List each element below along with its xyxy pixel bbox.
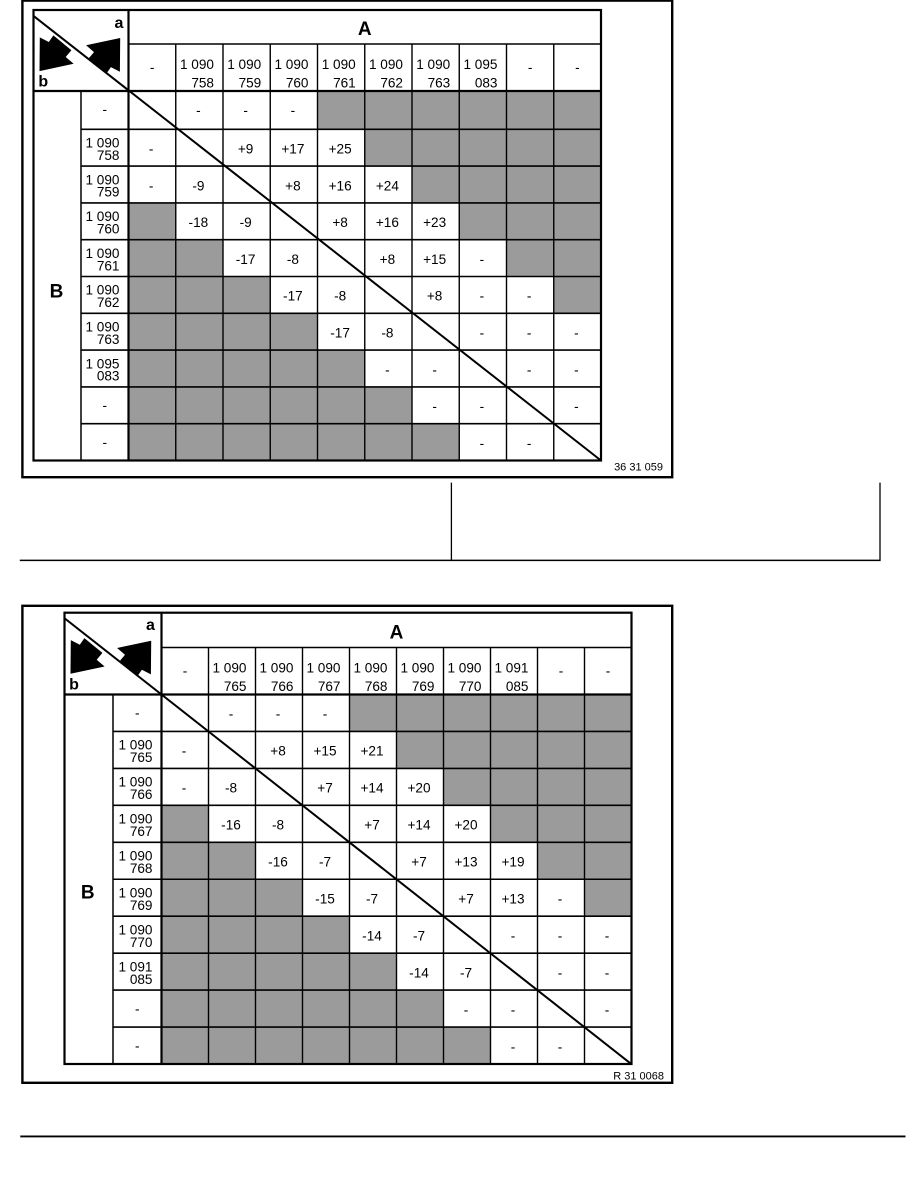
- svg-text:-17: -17: [283, 289, 303, 304]
- svg-text:+15: +15: [313, 744, 336, 759]
- svg-text:+16: +16: [376, 215, 399, 230]
- svg-text:768: 768: [365, 679, 388, 694]
- svg-text:083: 083: [97, 369, 120, 384]
- svg-text:-: -: [102, 435, 107, 450]
- svg-text:-: -: [291, 103, 296, 118]
- svg-text:-8: -8: [272, 818, 284, 833]
- svg-text:-: -: [149, 178, 154, 193]
- svg-text:-: -: [276, 707, 281, 722]
- svg-text:-17: -17: [236, 252, 256, 267]
- svg-text:-: -: [243, 103, 248, 118]
- svg-text:-14: -14: [409, 965, 429, 980]
- svg-text:085: 085: [130, 972, 153, 987]
- svg-text:-: -: [511, 928, 516, 943]
- svg-text:761: 761: [97, 258, 120, 273]
- svg-text:-16: -16: [221, 818, 241, 833]
- svg-text:-7: -7: [366, 891, 378, 906]
- svg-text:766: 766: [130, 787, 153, 802]
- svg-text:770: 770: [130, 935, 153, 950]
- svg-text:-: -: [323, 707, 328, 722]
- svg-text:+13: +13: [454, 855, 477, 870]
- svg-text:760: 760: [97, 222, 120, 237]
- svg-text:-8: -8: [381, 326, 393, 341]
- svg-text:758: 758: [191, 75, 214, 90]
- svg-text:+14: +14: [360, 781, 383, 796]
- svg-text:763: 763: [97, 332, 120, 347]
- svg-text:-14: -14: [362, 928, 382, 943]
- svg-text:-: -: [511, 1002, 516, 1017]
- svg-text:-: -: [102, 398, 107, 413]
- svg-text:+7: +7: [411, 855, 427, 870]
- svg-text:768: 768: [130, 861, 153, 876]
- svg-text:1 090: 1 090: [400, 661, 434, 676]
- svg-text:-: -: [575, 60, 580, 75]
- svg-text:-: -: [558, 891, 563, 906]
- svg-text:-: -: [558, 928, 563, 943]
- svg-text:765: 765: [130, 750, 153, 765]
- svg-text:767: 767: [318, 679, 341, 694]
- svg-text:-18: -18: [189, 215, 209, 230]
- svg-text:-: -: [558, 965, 563, 980]
- svg-text:+20: +20: [454, 818, 477, 833]
- svg-text:-: -: [135, 1038, 140, 1053]
- svg-text:760: 760: [286, 75, 309, 90]
- svg-text:-: -: [605, 928, 610, 943]
- svg-text:36 31 059: 36 31 059: [614, 462, 663, 474]
- svg-text:a: a: [146, 617, 155, 634]
- svg-text:-: -: [135, 706, 140, 721]
- svg-text:+7: +7: [317, 781, 333, 796]
- svg-text:+19: +19: [501, 855, 524, 870]
- svg-text:+8: +8: [270, 744, 286, 759]
- svg-text:-: -: [527, 326, 532, 341]
- svg-text:762: 762: [380, 75, 403, 90]
- svg-text:+14: +14: [407, 818, 430, 833]
- svg-text:-: -: [102, 102, 107, 117]
- svg-text:+23: +23: [423, 215, 446, 230]
- svg-text:-: -: [385, 362, 390, 377]
- svg-text:-8: -8: [334, 289, 346, 304]
- svg-text:1 090: 1 090: [447, 661, 481, 676]
- svg-text:766: 766: [271, 679, 294, 694]
- svg-text:+8: +8: [285, 178, 301, 193]
- svg-text:770: 770: [459, 679, 482, 694]
- svg-text:-: -: [527, 436, 532, 451]
- svg-text:-: -: [574, 399, 579, 414]
- svg-text:B: B: [50, 282, 64, 303]
- svg-text:1 090: 1 090: [227, 57, 261, 72]
- svg-text:1 090: 1 090: [322, 57, 356, 72]
- svg-text:-: -: [432, 362, 437, 377]
- svg-text:+9: +9: [238, 142, 254, 157]
- svg-text:1 090: 1 090: [259, 661, 293, 676]
- svg-text:+7: +7: [458, 891, 474, 906]
- svg-text:-15: -15: [315, 891, 335, 906]
- svg-text:-7: -7: [319, 855, 331, 870]
- svg-text:767: 767: [130, 824, 153, 839]
- svg-text:759: 759: [239, 75, 262, 90]
- svg-text:+17: +17: [281, 142, 304, 157]
- svg-text:+8: +8: [380, 252, 396, 267]
- svg-text:-: -: [196, 103, 201, 118]
- svg-text:-: -: [150, 60, 155, 75]
- svg-text:B: B: [81, 883, 95, 904]
- svg-text:-: -: [606, 663, 611, 678]
- svg-text:-: -: [559, 663, 564, 678]
- svg-text:+15: +15: [423, 252, 446, 267]
- svg-text:-9: -9: [240, 215, 252, 230]
- svg-text:761: 761: [333, 75, 356, 90]
- svg-text:769: 769: [412, 679, 435, 694]
- svg-text:1 090: 1 090: [416, 57, 450, 72]
- svg-text:-16: -16: [268, 855, 288, 870]
- svg-text:1 095: 1 095: [463, 57, 497, 72]
- svg-text:-: -: [527, 362, 532, 377]
- svg-text:a: a: [115, 15, 124, 32]
- svg-text:083: 083: [475, 75, 498, 90]
- svg-text:-: -: [528, 60, 533, 75]
- svg-text:R 31 0068: R 31 0068: [613, 1071, 664, 1083]
- svg-text:+25: +25: [329, 142, 352, 157]
- svg-text:-: -: [527, 289, 532, 304]
- svg-text:-: -: [511, 1039, 516, 1054]
- svg-text:1 090: 1 090: [306, 661, 340, 676]
- svg-text:-: -: [605, 1002, 610, 1017]
- svg-text:1 090: 1 090: [212, 661, 246, 676]
- svg-text:+21: +21: [360, 744, 383, 759]
- svg-text:-: -: [182, 744, 187, 759]
- svg-text:759: 759: [97, 185, 120, 200]
- svg-text:-8: -8: [225, 781, 237, 796]
- svg-text:-: -: [480, 289, 485, 304]
- svg-text:+24: +24: [376, 178, 399, 193]
- svg-text:-17: -17: [330, 326, 350, 341]
- svg-text:1 090: 1 090: [353, 661, 387, 676]
- svg-text:+16: +16: [329, 178, 352, 193]
- svg-text:b: b: [69, 677, 79, 694]
- svg-text:-: -: [558, 1039, 563, 1054]
- svg-text:-: -: [432, 399, 437, 414]
- svg-text:1 090: 1 090: [180, 57, 214, 72]
- svg-text:+8: +8: [427, 289, 443, 304]
- svg-text:-: -: [182, 781, 187, 796]
- svg-text:b: b: [38, 74, 48, 91]
- svg-text:-: -: [149, 142, 154, 157]
- svg-text:+8: +8: [332, 215, 348, 230]
- svg-text:758: 758: [97, 148, 120, 163]
- svg-text:-: -: [605, 965, 610, 980]
- svg-text:769: 769: [130, 898, 153, 913]
- svg-text:1 090: 1 090: [274, 57, 308, 72]
- svg-text:+20: +20: [407, 781, 430, 796]
- svg-text:-: -: [574, 362, 579, 377]
- svg-text:+7: +7: [364, 818, 380, 833]
- svg-text:085: 085: [506, 679, 529, 694]
- svg-text:-: -: [480, 252, 485, 267]
- svg-text:763: 763: [428, 75, 451, 90]
- svg-text:762: 762: [97, 295, 120, 310]
- svg-text:-: -: [135, 1001, 140, 1016]
- svg-text:-8: -8: [287, 252, 299, 267]
- svg-text:1 091: 1 091: [494, 661, 528, 676]
- svg-text:A: A: [358, 19, 372, 40]
- svg-text:-7: -7: [413, 928, 425, 943]
- svg-text:1 090: 1 090: [369, 57, 403, 72]
- svg-text:765: 765: [224, 679, 247, 694]
- svg-text:-: -: [480, 326, 485, 341]
- svg-text:-: -: [480, 399, 485, 414]
- svg-text:-: -: [183, 663, 188, 678]
- svg-text:+13: +13: [501, 891, 524, 906]
- svg-text:-: -: [574, 326, 579, 341]
- svg-text:-9: -9: [192, 178, 204, 193]
- svg-text:-7: -7: [460, 965, 472, 980]
- svg-text:-: -: [229, 707, 234, 722]
- svg-text:-: -: [480, 436, 485, 451]
- svg-text:-: -: [464, 1002, 469, 1017]
- svg-text:A: A: [390, 623, 404, 644]
